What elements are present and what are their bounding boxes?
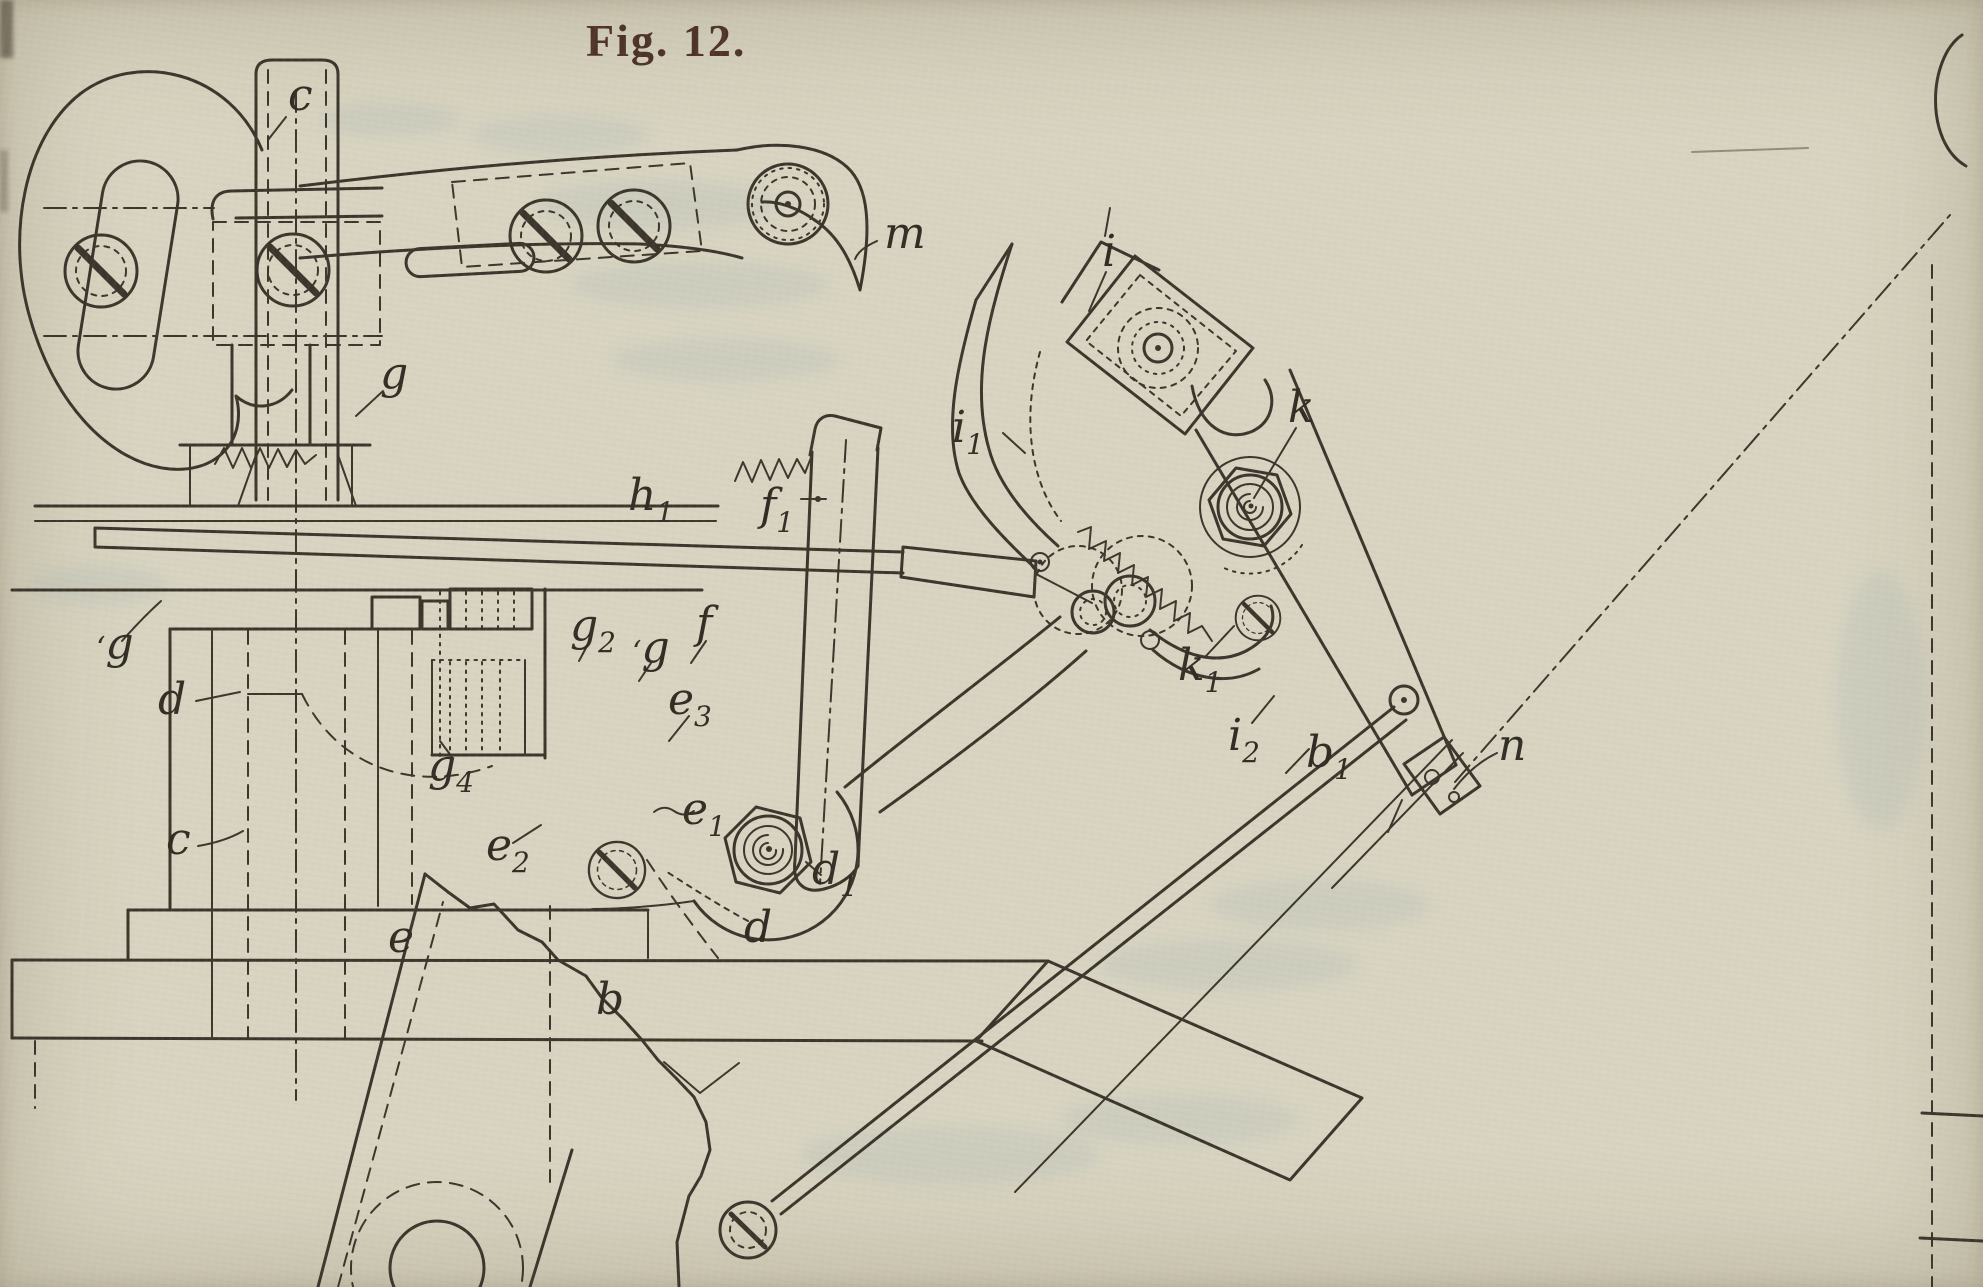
part-label-k1: k1 (1178, 640, 1223, 699)
part-label-b: b (596, 974, 624, 1025)
corner-arc (1936, 35, 1967, 166)
part-label-e: e (388, 912, 414, 963)
scanned-book-page: Fig. 12. (0, 0, 1983, 1287)
part-label-e3: e3 (668, 674, 712, 733)
part-label-i1: i1 (952, 402, 984, 461)
connecting-rods (720, 707, 1463, 1258)
part-label-g4: g4 (428, 740, 474, 799)
break-edge (448, 892, 710, 1196)
part-label-g: g (380, 348, 408, 399)
k-screw (1236, 596, 1281, 641)
u-slot (1192, 380, 1272, 435)
bleed-through-stains (30, 102, 1925, 1185)
column (232, 345, 310, 443)
part-label-h1: h1 (628, 470, 674, 529)
part-label-g: ʻg (632, 622, 670, 673)
part-label-g2: g2 (570, 600, 616, 659)
part-label-g: ʻg (96, 618, 134, 669)
part-label-d: d (744, 902, 772, 953)
part-label-d1: d1 (812, 844, 858, 903)
part-label-i: i (1102, 226, 1116, 277)
part-label-c: c (288, 70, 313, 121)
carriage-rails (12, 506, 1092, 603)
spring-icon (735, 455, 812, 482)
i-block (1062, 208, 1272, 435)
gear-cluster (952, 244, 1272, 679)
figure-title: Fig. 12. (586, 15, 746, 66)
part-label-k: k (1288, 382, 1315, 433)
figure-12-drawing: Fig. 12. (0, 0, 1983, 1287)
part-label-n: n (1498, 720, 1526, 771)
cam-path-g4 (302, 694, 492, 777)
fragment-hole (390, 1221, 484, 1287)
part-label-f1: f1 (757, 480, 794, 539)
blade-tip-block (901, 547, 1036, 597)
part-label-e1: e1 (682, 784, 726, 843)
part-label-c: c (166, 814, 191, 865)
handle-outline (20, 72, 292, 470)
part-label-f: f (693, 598, 719, 649)
scan-edge-smudges (0, 0, 13, 212)
part-label-d: d (158, 674, 186, 725)
part-label-e2: e2 (486, 820, 530, 879)
spring-icon (215, 448, 316, 468)
part-label-b1: b1 (1306, 727, 1352, 786)
post-screw (257, 234, 329, 306)
part-label-m: m (884, 208, 926, 259)
handle-screw (65, 235, 137, 307)
broken-fragment (318, 874, 710, 1287)
handle-slot (72, 155, 183, 394)
block-screw (589, 842, 645, 898)
pawl-i1 (981, 244, 1058, 546)
